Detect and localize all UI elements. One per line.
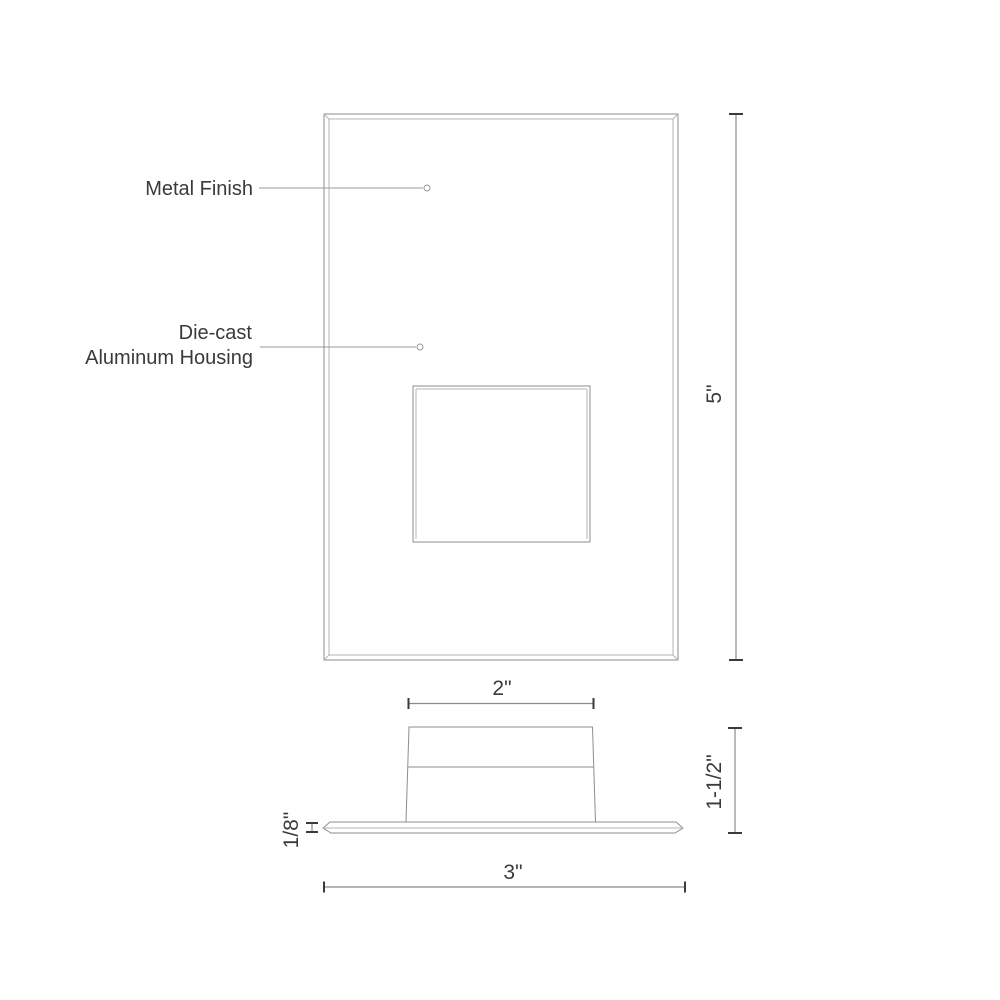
bevel-miter-bottom-left (324, 655, 329, 660)
side-view (323, 727, 683, 833)
front-view (324, 114, 678, 660)
side-housing-body (406, 727, 596, 822)
dim-1-8-text: 1/8" (280, 812, 303, 849)
housing-leader-dot (417, 344, 423, 350)
dimension-body-width: 2" (409, 677, 594, 709)
lens-opening-outer-edge (413, 386, 590, 542)
metal-finish-label: Metal Finish (145, 178, 253, 200)
metal-finish-leader-dot (424, 185, 430, 191)
housing-label-line1: Die-cast (179, 322, 253, 344)
lens-opening (413, 386, 590, 542)
dimension-body-height: 1-1/2" (703, 728, 742, 833)
dim-3-text: 3" (503, 861, 522, 884)
housing-label-line2: Aluminum Housing (85, 347, 253, 369)
dim-5-text: 5" (703, 384, 726, 403)
bevel-miter-bottom-right (673, 655, 678, 660)
drawing-canvas: Metal Finish Die-cast Aluminum Housing 5… (0, 0, 1000, 1000)
bevel-miter-top-right (673, 114, 678, 119)
dimension-overall-height: 5" (703, 114, 743, 660)
dimension-faceplate-width: 3" (324, 861, 685, 893)
front-faceplate-bevel-edge (329, 119, 673, 655)
dim-1-1-2-text: 1-1/2" (703, 754, 726, 809)
dimension-faceplate-thickness: 1/8" (280, 812, 318, 849)
dim-2-text: 2" (492, 677, 511, 700)
callouts: Metal Finish Die-cast Aluminum Housing (85, 178, 430, 369)
dimension-drawing-svg: Metal Finish Die-cast Aluminum Housing 5… (0, 0, 1000, 1000)
front-faceplate-outer-edge (324, 114, 678, 660)
bevel-miter-top-left (324, 114, 329, 119)
